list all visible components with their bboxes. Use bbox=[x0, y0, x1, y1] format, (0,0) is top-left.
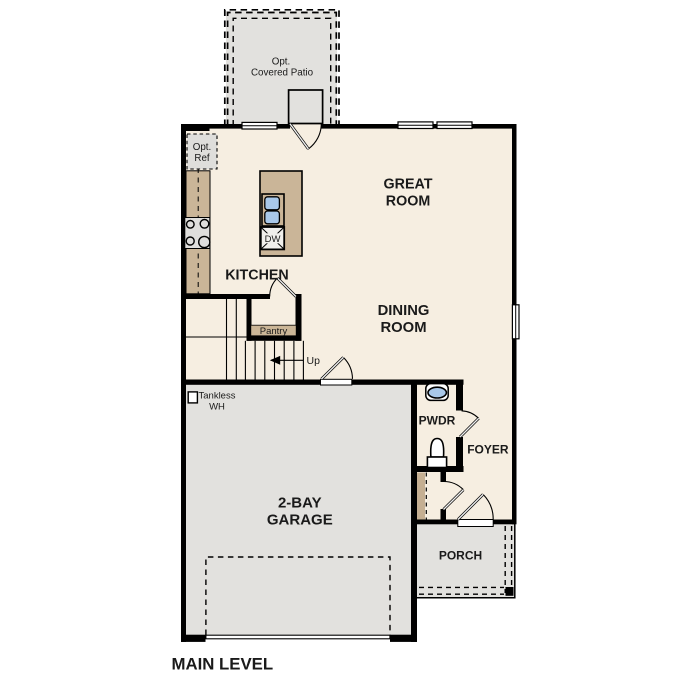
svg-text:Opt.: Opt. bbox=[272, 57, 291, 68]
svg-text:KITCHEN: KITCHEN bbox=[225, 268, 289, 284]
svg-text:GARAGE: GARAGE bbox=[267, 512, 333, 529]
svg-text:ROOM: ROOM bbox=[386, 193, 430, 209]
svg-text:FOYER: FOYER bbox=[467, 442, 509, 456]
svg-text:Ref: Ref bbox=[194, 153, 210, 164]
svg-text:2-BAY: 2-BAY bbox=[278, 495, 322, 512]
svg-text:MAIN LEVEL: MAIN LEVEL bbox=[172, 655, 274, 674]
svg-text:WH: WH bbox=[209, 401, 225, 412]
svg-text:Tankless: Tankless bbox=[199, 390, 236, 401]
svg-text:DINING: DINING bbox=[378, 303, 430, 319]
svg-text:DW: DW bbox=[265, 234, 281, 245]
svg-text:GREAT: GREAT bbox=[384, 177, 433, 193]
svg-text:Opt.: Opt. bbox=[193, 142, 212, 153]
svg-text:Up: Up bbox=[307, 355, 321, 367]
svg-text:PORCH: PORCH bbox=[439, 549, 482, 563]
svg-text:Covered Patio: Covered Patio bbox=[251, 68, 314, 79]
svg-text:ROOM: ROOM bbox=[380, 320, 426, 336]
svg-text:PWDR: PWDR bbox=[419, 414, 456, 428]
svg-text:Pantry: Pantry bbox=[260, 326, 288, 337]
